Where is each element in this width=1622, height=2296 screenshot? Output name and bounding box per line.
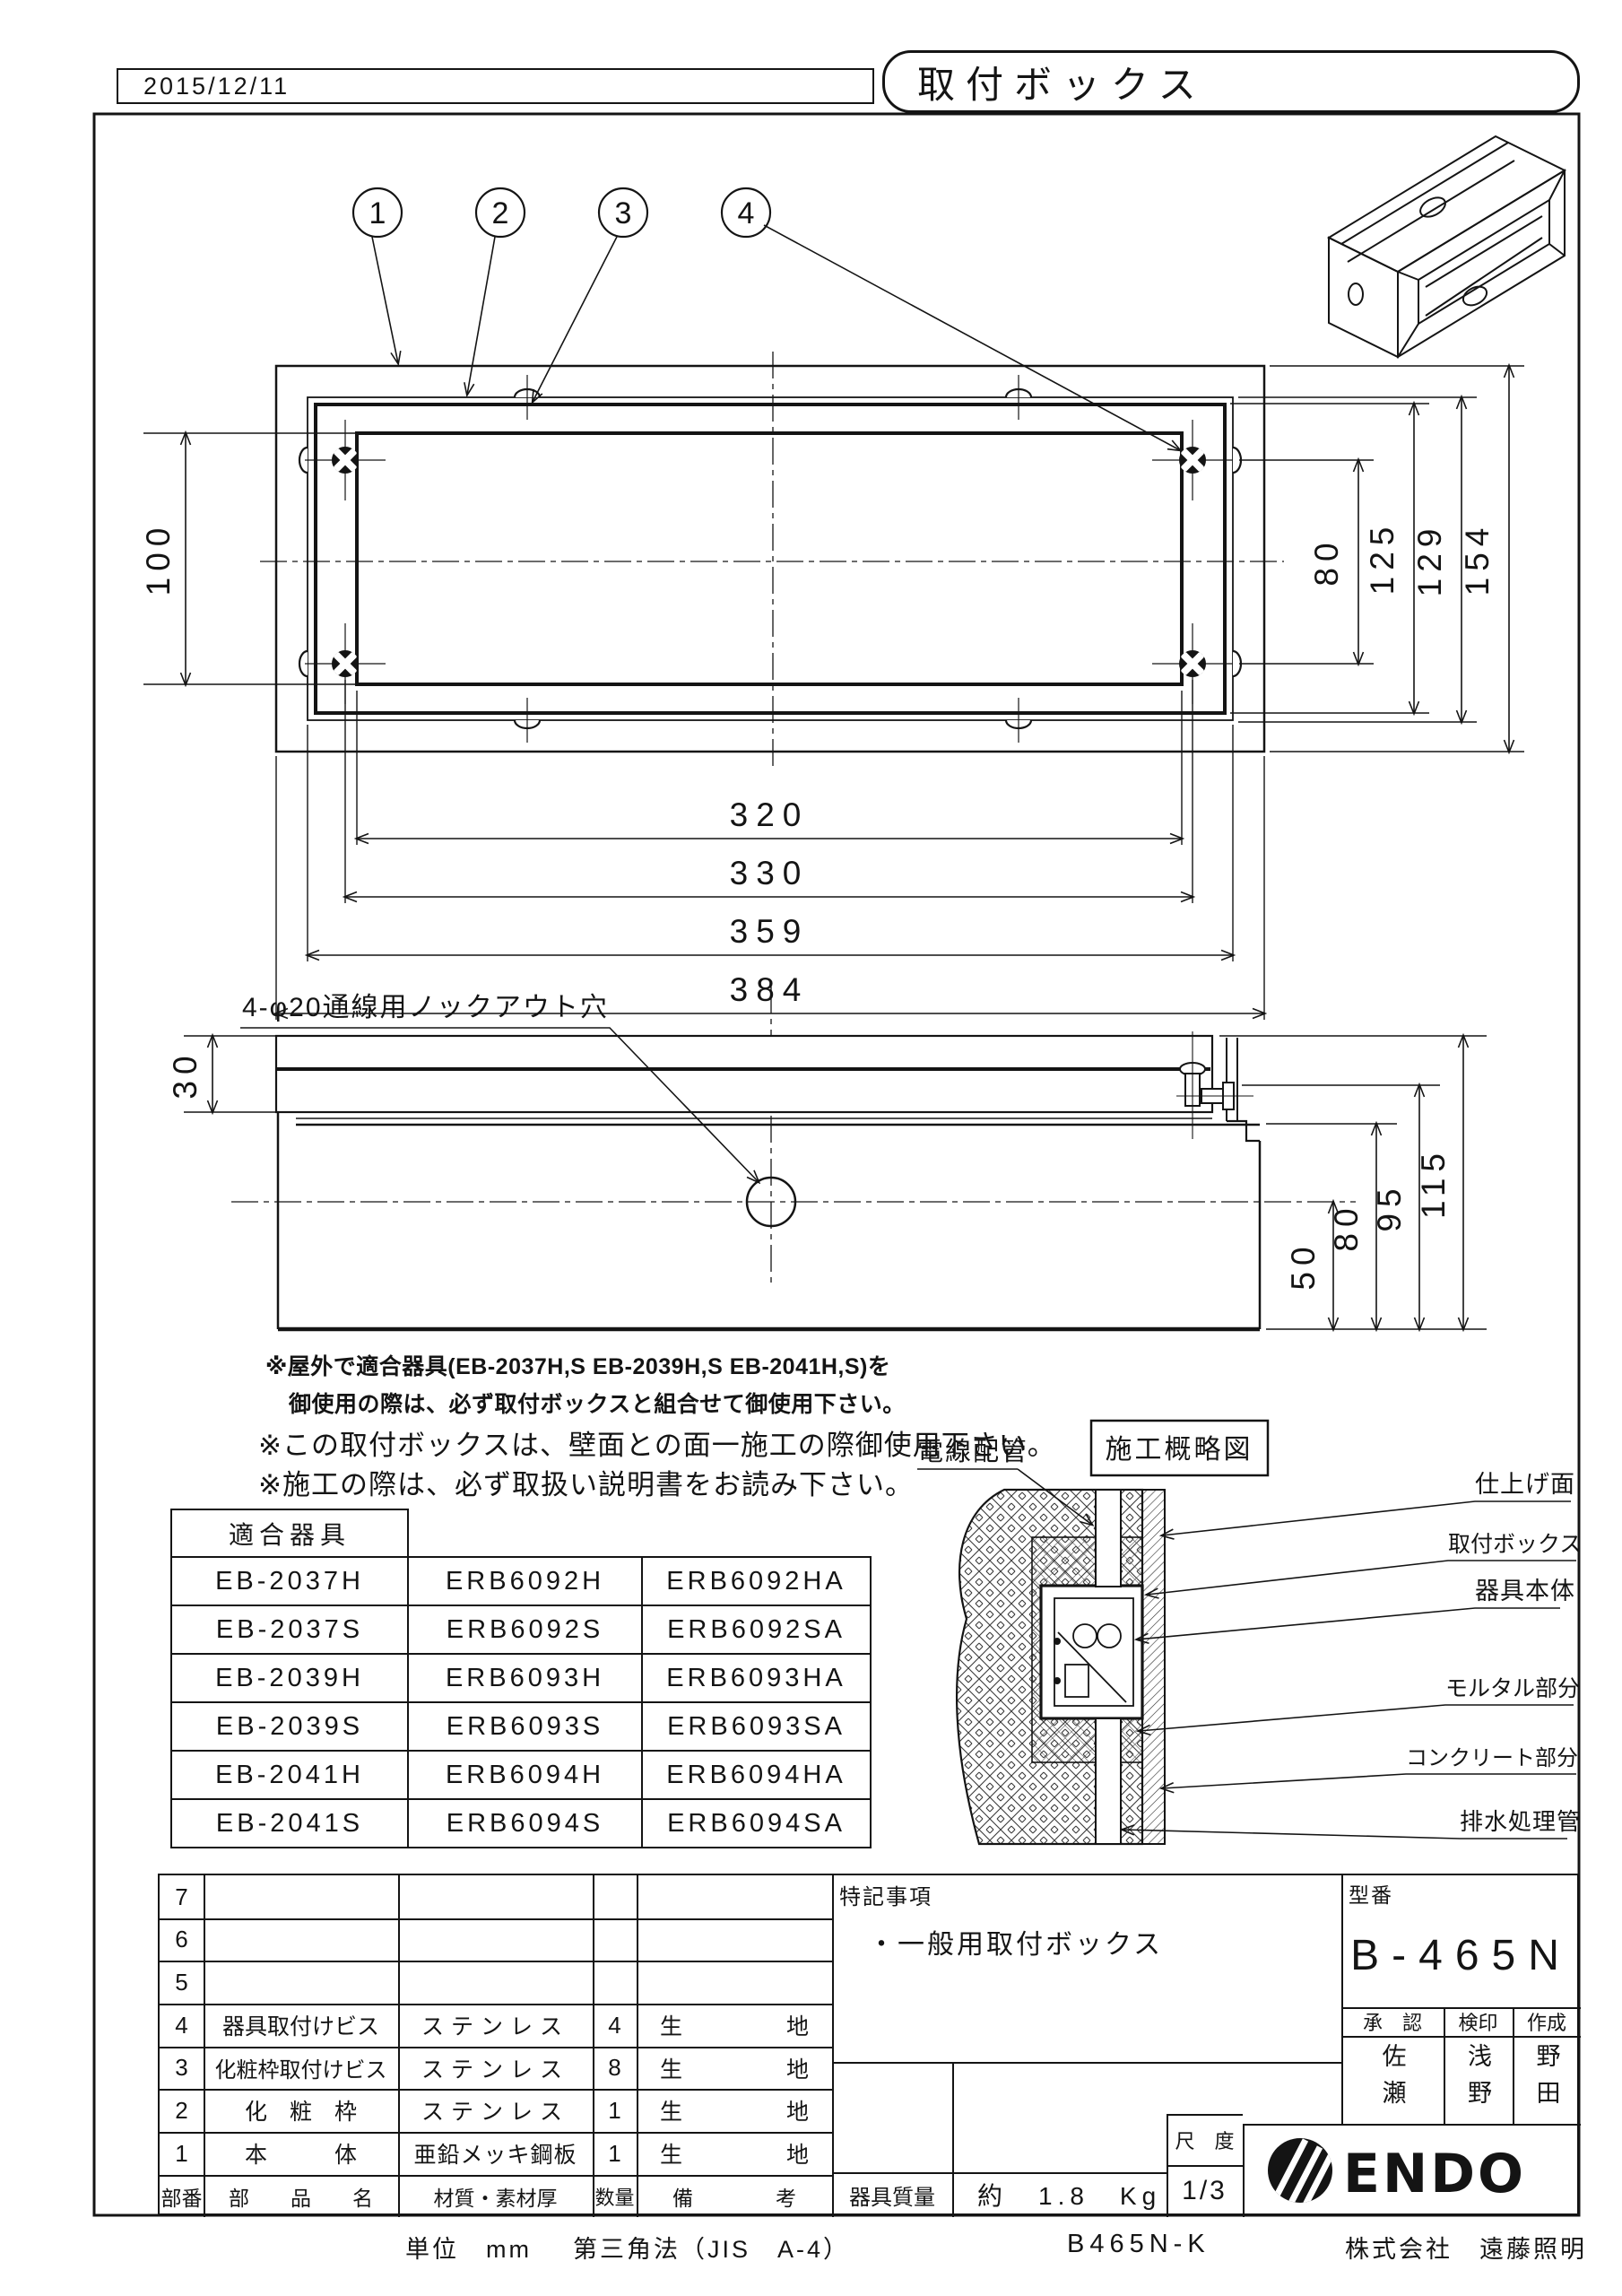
checker-name: 浅野 xyxy=(1444,2036,1513,2124)
label-fixture: 器具本体 xyxy=(1475,1578,1575,1605)
compat-row: EB-2041SERB6094SERB6094SA xyxy=(171,1799,871,1848)
compat-row: EB-2041HERB6094HERB6094HA xyxy=(171,1751,871,1799)
dim-359: 359 xyxy=(730,913,810,950)
top-view: 1 2 3 4 xyxy=(140,188,1524,1020)
part-qty: 8 xyxy=(593,2047,637,2089)
part-qty: 1 xyxy=(593,2089,637,2132)
footer-units: 単位 mm xyxy=(405,2230,532,2265)
compat-row: EB-2037SERB6092SERB6092SA xyxy=(171,1605,871,1654)
dim-320: 320 xyxy=(730,796,810,833)
part-name: 化 粧 枠 xyxy=(204,2089,398,2132)
note-line-1: ※屋外で適合器具(EB-2037H,S EB-2039H,S EB-2041H,… xyxy=(265,1349,890,1381)
scale-label: 尺 度 xyxy=(1167,2114,1243,2165)
footer-code: B465N-K xyxy=(1067,2230,1210,2259)
approver-name: 佐瀬 xyxy=(1341,2036,1444,2124)
part-material: ステンレス xyxy=(398,2047,593,2089)
dim-80s: 80 xyxy=(1328,1202,1365,1251)
endo-logo-text: ENDO xyxy=(1343,2143,1526,2205)
part-remarks: 生地 xyxy=(637,2004,832,2047)
label-box: 取付ボックス xyxy=(1448,1532,1582,1557)
special-notes-content: ・一般用取付ボックス xyxy=(868,1922,1298,1961)
callout-3: 3 xyxy=(615,196,632,230)
callout-bubbles: 1 2 3 4 xyxy=(353,188,1180,450)
dim-80: 80 xyxy=(1308,536,1345,586)
check-label: 検印 xyxy=(1444,2007,1513,2036)
creator-name: 野田 xyxy=(1513,2036,1581,2124)
dim-125: 125 xyxy=(1364,521,1401,596)
dim-100: 100 xyxy=(140,522,177,596)
part-no: 1 xyxy=(160,2132,204,2175)
col-header-name: 部 品 名 xyxy=(204,2175,398,2217)
note-line-3: ※この取付ボックスは、壁面との面一施工の際御使用下さい。 xyxy=(258,1422,1056,1463)
dim-384: 384 xyxy=(730,971,810,1008)
label-mortar: モルタル部分 xyxy=(1445,1676,1580,1701)
compat-table: 適合器具 EB-2037HERB6092HERB6092HA EB-2037SE… xyxy=(170,1509,872,1848)
dim-154: 154 xyxy=(1459,522,1496,596)
note-line-2: 御使用の際は、必ず取付ボックスと組合せて御使用下さい。 xyxy=(289,1387,906,1419)
part-name: 本 体 xyxy=(204,2132,398,2175)
part-remarks: 生地 xyxy=(637,2132,832,2175)
part-material: ステンレス xyxy=(398,2089,593,2132)
footer-projection: 第三角法（JIS A-4） xyxy=(573,2230,850,2265)
sheet-title-box: 取付ボックス xyxy=(882,50,1580,113)
title-block: 7 6 5 4 3 2 1 部番 器具取付けビス 化粧枠取付けビス 化 粧 枠 … xyxy=(158,1874,1579,2215)
mass-label: 器具質量 xyxy=(832,2172,952,2217)
date-text: 2015/12/11 xyxy=(143,73,290,100)
part-remarks: 生地 xyxy=(637,2089,832,2132)
dim-50: 50 xyxy=(1285,1240,1322,1290)
part-name: 器具取付けビス xyxy=(204,2004,398,2047)
dim-30: 30 xyxy=(167,1049,204,1099)
label-concrete: コンクリート部分 xyxy=(1406,1746,1578,1770)
compat-row: EB-2039SERB6093SERB6093SA xyxy=(171,1702,871,1751)
compat-header: 適合器具 xyxy=(171,1509,408,1557)
part-material: ステンレス xyxy=(398,2004,593,2047)
part-no: 6 xyxy=(160,1918,204,1961)
part-name: 化粧枠取付けビス xyxy=(204,2047,398,2089)
sheet-title: 取付ボックス xyxy=(917,55,1207,109)
compat-row: EB-2037HERB6092HERB6092HA xyxy=(171,1557,871,1605)
label-drain: 排水処理管 xyxy=(1460,1808,1581,1835)
perspective-view xyxy=(1329,136,1565,357)
label-finish: 仕上げ面 xyxy=(1475,1471,1575,1498)
part-no: 4 xyxy=(160,2004,204,2047)
part-remarks: 生地 xyxy=(637,2047,832,2089)
part-no: 7 xyxy=(160,1875,204,1918)
col-header-material: 材質・素材厚 xyxy=(398,2175,593,2217)
compat-row: EB-2039HERB6093HERB6093HA xyxy=(171,1654,871,1702)
part-no: 3 xyxy=(160,2047,204,2089)
mass-value: 約 1.8 Kg xyxy=(952,2172,1167,2217)
section-title: 施工概略図 xyxy=(1106,1435,1253,1465)
dim-115: 115 xyxy=(1415,1147,1452,1219)
special-notes-label: 特記事項 xyxy=(839,1879,1019,1909)
endo-logo-icon: ENDO xyxy=(1264,2133,1560,2208)
model-number: B-465N xyxy=(1341,1904,1581,2007)
section-diagram: 施工概略図 電線配管 仕上げ面 取付ボックス 器具本体 モルタル部分 コンクリー… xyxy=(917,1421,1582,1844)
endo-logo: ENDO xyxy=(1243,2124,1581,2217)
compat-header-row: 適合器具 xyxy=(171,1509,871,1557)
footer-standards: 単位 mm 第三角法（JIS A-4） xyxy=(405,2230,850,2265)
knockout-label: 4-φ20通線用ノックアウト穴 xyxy=(242,993,609,1022)
part-no: 2 xyxy=(160,2089,204,2132)
col-header-remarks: 備考 xyxy=(637,2175,832,2217)
date-box: 2015/12/11 xyxy=(117,68,874,104)
side-view: 4-φ20通線用ノックアウト穴 30 50 80 95 115 xyxy=(167,987,1487,1329)
scale-value: 1/3 xyxy=(1167,2165,1243,2217)
callout-4: 4 xyxy=(738,196,755,230)
dim-129: 129 xyxy=(1411,523,1448,597)
drawing-sheet: 1 2 3 4 xyxy=(0,0,1622,2296)
part-no: 5 xyxy=(160,1961,204,2004)
part-material: 亜鉛メッキ鋼板 xyxy=(398,2132,593,2175)
approve-label: 承 認 xyxy=(1341,2007,1444,2036)
part-qty: 4 xyxy=(593,2004,637,2047)
col-header-no: 部番 xyxy=(160,2175,204,2217)
create-label: 作成 xyxy=(1513,2007,1581,2036)
note-line-4: ※施工の際は、必ず取扱い説明書をお読み下さい。 xyxy=(258,1462,914,1502)
callout-1: 1 xyxy=(369,196,386,230)
callout-2: 2 xyxy=(492,196,509,230)
dim-95: 95 xyxy=(1371,1182,1408,1231)
dim-330: 330 xyxy=(730,855,810,891)
footer-company: 株式会社 遠藤照明 xyxy=(1345,2230,1587,2265)
part-qty: 1 xyxy=(593,2132,637,2175)
col-header-qty: 数量 xyxy=(593,2175,637,2217)
